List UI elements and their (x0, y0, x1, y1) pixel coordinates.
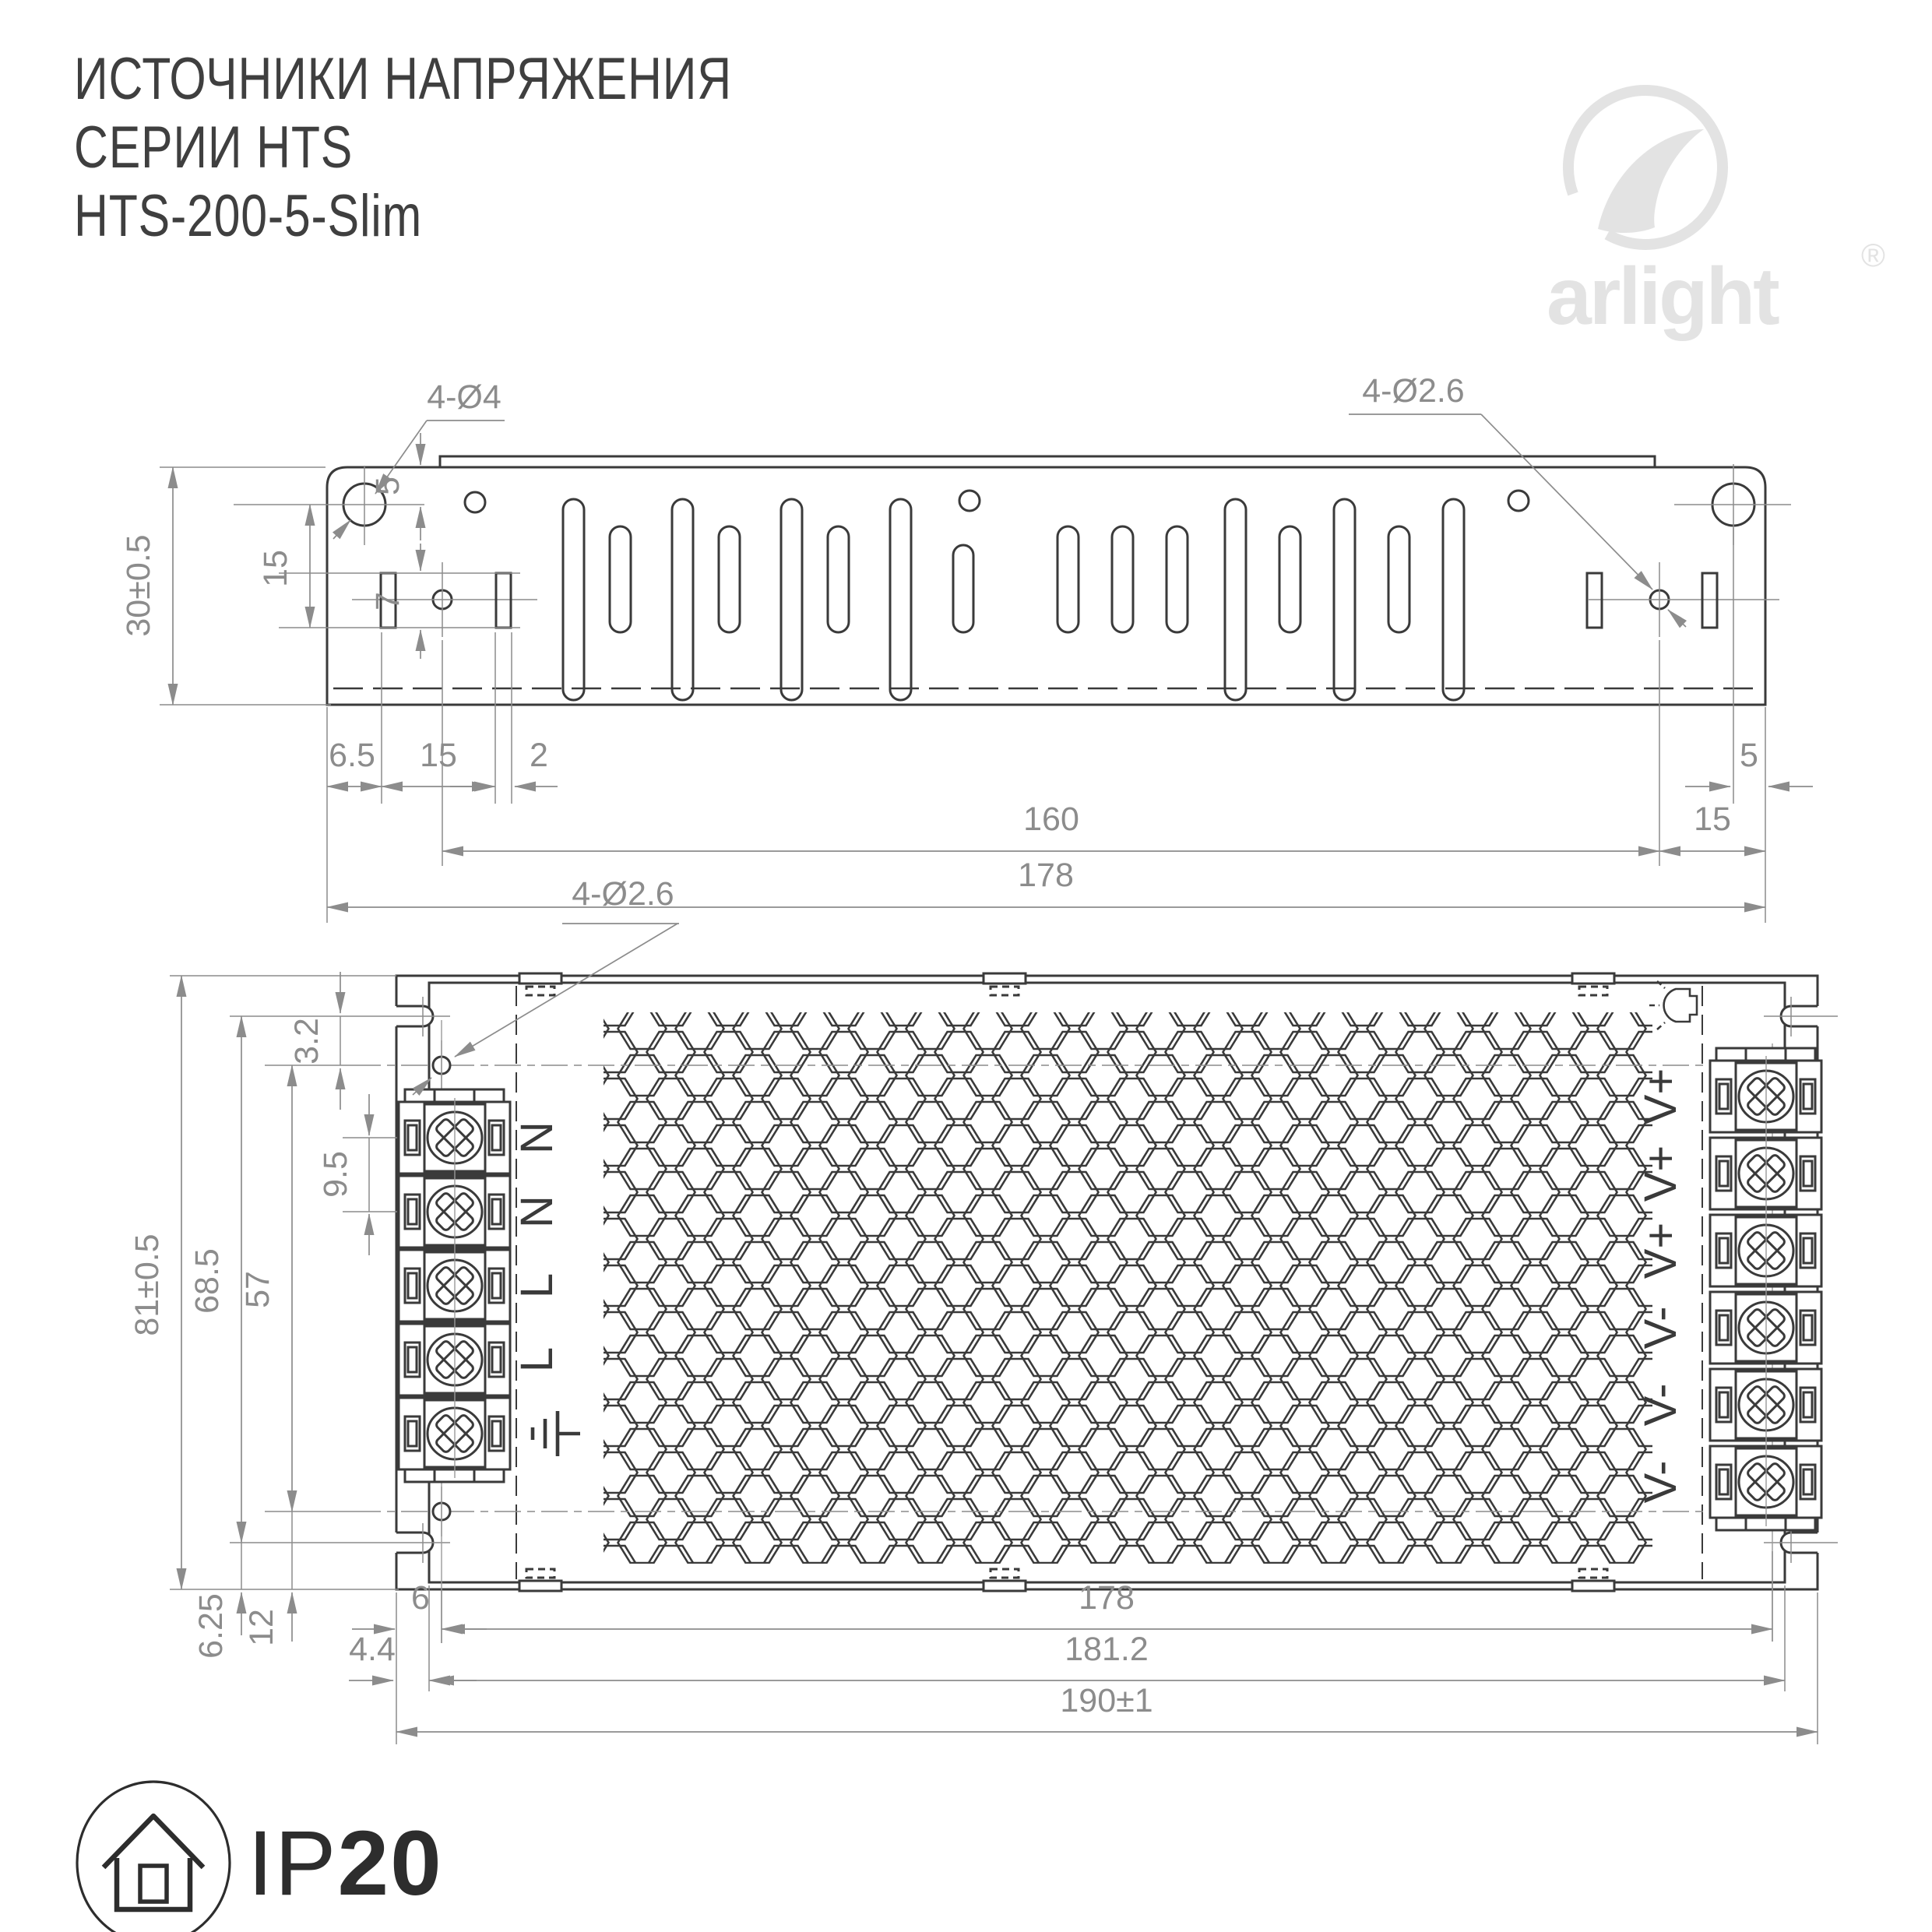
dim-9-5: 9.5 (317, 1094, 369, 1255)
hole-count-label: 4-Ø4 (427, 378, 501, 416)
dim-57: 57 (239, 1065, 292, 1511)
svg-text:181.2: 181.2 (1065, 1631, 1149, 1668)
svg-text:5: 5 (369, 477, 406, 495)
svg-text:15: 15 (420, 737, 457, 774)
svg-text:30±0.5: 30±0.5 (120, 534, 157, 636)
svg-text:4.4: 4.4 (349, 1631, 396, 1668)
svg-text:178: 178 (1018, 857, 1074, 894)
dim-178-top-view: 178 (327, 857, 1765, 907)
svg-text:6.5: 6.5 (329, 737, 375, 774)
chassis-side-outline (327, 467, 1765, 705)
hex-vent-mesh (604, 1012, 1652, 1564)
dim-81: 81±0.5 (128, 976, 181, 1589)
svg-text:15: 15 (1694, 801, 1731, 838)
datasheet-page: ИСТОЧНИКИ НАПРЯЖЕНИЯ СЕРИИ HTS HTS-200-5… (0, 0, 1932, 1932)
dim-4-4: 4.4 (349, 1631, 477, 1680)
svg-text:2: 2 (530, 737, 548, 774)
svg-text:15: 15 (257, 550, 294, 587)
terminal-label-vplus1: V+ (1635, 1068, 1686, 1125)
dim-12: 12 (243, 1511, 292, 1646)
svg-text:160: 160 (1023, 801, 1079, 838)
terminal-label-n1: N (512, 1121, 562, 1154)
dim-6-25: 6.25 (192, 1543, 241, 1659)
svg-text:68.5: 68.5 (188, 1248, 226, 1314)
terminal-label-vplus3: V+ (1635, 1223, 1686, 1279)
svg-text:7: 7 (369, 592, 406, 611)
dim-2: 2 (450, 737, 558, 787)
cover-lip (440, 456, 1655, 467)
svg-text:12: 12 (243, 1609, 280, 1646)
dim-190: 190±1 (396, 1682, 1818, 1732)
dim-68-5: 68.5 (188, 1016, 241, 1543)
terminal-label-l1: L (512, 1273, 562, 1298)
hole-count-label: 4-Ø2.6 (1362, 372, 1464, 410)
ip-rating: IP20 (248, 1811, 443, 1916)
terminal-label-l2: L (512, 1347, 562, 1372)
terminal-label-vminus3: V- (1635, 1461, 1686, 1504)
svg-text:57: 57 (239, 1271, 276, 1308)
logo-registered-mark: ® (1861, 237, 1885, 273)
svg-text:81±0.5: 81±0.5 (128, 1233, 166, 1336)
dim-6-5: 6.5 (327, 737, 382, 787)
svg-text:190±1: 190±1 (1060, 1682, 1153, 1719)
dim-15-right: 15 (1659, 801, 1765, 851)
dim-160: 160 (442, 801, 1659, 851)
hole-count-label: 4-Ø2.6 (572, 875, 674, 913)
svg-text:3.2: 3.2 (288, 1018, 326, 1065)
input-terminal-block (399, 1089, 510, 1482)
svg-text:6: 6 (411, 1579, 430, 1617)
ip-rating-prefix: IP (248, 1812, 338, 1915)
svg-text:6.25: 6.25 (192, 1593, 230, 1659)
front-view-drawing: N N L L V+ V+ V+ V- V- V- (128, 875, 1838, 1744)
dim-5-right: 5 (1685, 737, 1813, 787)
svg-text:5: 5 (1740, 737, 1758, 774)
logo-wordmark: arlight (1547, 252, 1779, 342)
terminal-label-n2: N (512, 1195, 562, 1228)
dim-30: 30±0.5 (120, 467, 331, 705)
terminal-label-vminus1: V- (1635, 1307, 1686, 1350)
dim-3-2: 3.2 (288, 972, 340, 1110)
terminal-label-vminus2: V- (1635, 1384, 1686, 1427)
terminal-label-vplus2: V+ (1635, 1145, 1686, 1202)
arlight-logo: arlight ® (1547, 90, 1885, 342)
dim-15-bottom: 15 (382, 737, 495, 787)
ip20-house-icon (77, 1782, 230, 1932)
ip-rating-value: 20 (338, 1812, 443, 1915)
logo-swoosh-icon (1598, 129, 1704, 233)
dim-181-2: 181.2 (429, 1631, 1785, 1680)
svg-text:178: 178 (1079, 1579, 1135, 1617)
technical-drawing: arlight ® (0, 0, 1932, 1932)
svg-text:9.5: 9.5 (317, 1151, 354, 1198)
top-view-drawing: 4-Ø4 4-Ø2.6 30±0.5 (120, 372, 1813, 923)
